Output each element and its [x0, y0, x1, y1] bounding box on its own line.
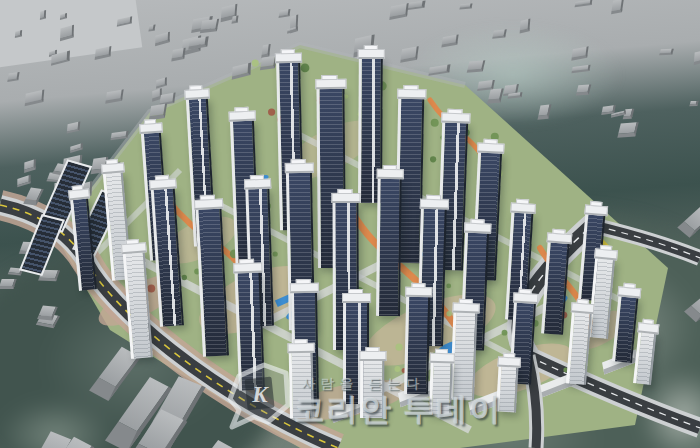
tower-rooftop	[342, 293, 371, 303]
penthouse-box	[576, 299, 588, 305]
city-building-block	[287, 26, 298, 34]
city-building-block	[618, 122, 639, 138]
tower-rooftop	[315, 79, 346, 89]
city-building-block	[15, 30, 23, 38]
penthouse-box	[403, 85, 418, 90]
tower-rooftop	[571, 302, 595, 314]
city-building-block	[149, 104, 167, 120]
city-building-block	[155, 31, 170, 46]
city-building-block	[492, 29, 507, 39]
penthouse-box	[382, 165, 396, 170]
penthouse-box	[600, 245, 612, 251]
tower-rooftop	[331, 193, 360, 203]
city-building-block	[60, 13, 67, 20]
penthouse-box	[519, 289, 532, 295]
tower-rooftop	[420, 199, 449, 210]
tower-rooftop	[285, 163, 314, 174]
penthouse-box	[516, 199, 529, 205]
city-building-block	[148, 24, 155, 31]
penthouse-box	[447, 109, 462, 115]
penthouse-box	[249, 175, 263, 180]
city-building-block	[23, 188, 44, 206]
penthouse-box	[623, 283, 635, 289]
city-building-block	[0, 279, 17, 289]
tower-rooftop	[68, 188, 90, 200]
city-building-block	[429, 64, 451, 75]
tower-rooftop	[510, 202, 536, 213]
tower-rooftop	[194, 198, 223, 209]
penthouse-box	[426, 195, 441, 200]
penthouse-box	[280, 49, 294, 54]
tower-rooftop	[149, 178, 177, 190]
penthouse-box	[291, 159, 306, 164]
city-building-block	[17, 175, 31, 187]
penthouse-box	[234, 107, 248, 113]
city-building-block	[261, 44, 270, 58]
city-building-block	[694, 49, 700, 65]
tower-rooftop	[184, 89, 210, 100]
city-slab-building	[685, 290, 700, 322]
penthouse-box	[144, 119, 156, 125]
city-building-block	[171, 48, 186, 61]
city-building-block	[66, 122, 80, 135]
tower-rooftop	[584, 204, 608, 216]
tower-rooftop	[452, 303, 479, 314]
penthouse-box	[590, 201, 602, 207]
penthouse-box	[126, 239, 139, 245]
tower-rooftop	[637, 322, 659, 334]
tower-rooftop	[498, 356, 522, 367]
city-building-block	[571, 46, 588, 60]
city-building-block	[260, 56, 277, 70]
tower-rooftop	[290, 283, 319, 294]
city-building-block	[24, 159, 36, 173]
city-building-block	[611, 0, 624, 14]
apartment-tower	[376, 178, 402, 316]
penthouse-box	[72, 185, 83, 191]
penthouse-box	[363, 45, 377, 50]
tower-rooftop	[139, 122, 163, 134]
city-building-block	[188, 36, 208, 50]
tower-rooftop	[358, 49, 385, 59]
city-building-block	[575, 85, 590, 96]
city-building-block	[689, 101, 698, 106]
tower-rooftop	[405, 287, 432, 298]
tower-rooftop	[547, 232, 573, 244]
city-building-block	[24, 90, 43, 107]
city-building-block	[7, 73, 19, 82]
city-building-block	[401, 46, 420, 63]
penthouse-box	[458, 299, 472, 305]
tower-rooftop	[513, 292, 539, 304]
city-building-block	[117, 17, 132, 27]
logo-letter: K	[251, 382, 269, 407]
tower-rooftop	[477, 143, 504, 154]
penthouse-box	[337, 189, 352, 194]
tower-rooftop	[275, 53, 302, 64]
city-building-block	[571, 65, 590, 73]
city-building-block	[537, 104, 551, 119]
tower-rooftop	[397, 89, 426, 100]
penthouse-box	[154, 175, 168, 181]
tower-rooftop	[288, 343, 315, 354]
city-building-block	[231, 62, 250, 79]
tower-rooftop	[464, 223, 491, 234]
tower-rooftop	[229, 111, 256, 122]
city-building-block	[94, 46, 111, 60]
penthouse-box	[483, 139, 497, 145]
city-building-block	[232, 15, 239, 24]
tower-rooftop	[233, 263, 262, 274]
city-building-block	[467, 61, 486, 74]
city-building-block	[487, 89, 504, 104]
city-building-block	[60, 25, 74, 41]
penthouse-box	[200, 195, 215, 201]
penthouse-box	[322, 75, 338, 80]
penthouse-box	[296, 279, 311, 284]
city-building-block	[477, 79, 494, 90]
penthouse-box	[105, 159, 117, 165]
city-building-block	[105, 90, 123, 104]
city-building-block	[441, 35, 458, 48]
watermark-brand: 코리안 투데이	[294, 389, 503, 431]
city-building-block	[459, 4, 472, 10]
city-building-block	[110, 130, 128, 140]
penthouse-box	[348, 289, 363, 294]
tower-rooftop	[377, 169, 404, 179]
city-building-block	[389, 3, 408, 20]
aerial-3d-rendering: K 사람을 듣는다 코리안 투데이	[0, 0, 700, 448]
city-building-block	[507, 92, 522, 98]
penthouse-box	[503, 353, 515, 359]
penthouse-box	[189, 85, 202, 91]
city-slab-building	[677, 205, 700, 237]
penthouse-box	[470, 219, 484, 225]
k-speech-bubble-logo-icon: K	[222, 360, 294, 440]
penthouse-box	[552, 229, 565, 235]
penthouse-box	[293, 339, 307, 344]
watermark: K 사람을 듣는다 코리안 투데이	[222, 358, 492, 446]
penthouse-box	[411, 283, 425, 288]
city-building-block	[520, 18, 531, 33]
city-building-block	[660, 49, 675, 56]
penthouse-box	[643, 319, 654, 325]
tower-rooftop	[101, 162, 125, 174]
tower-rooftop	[244, 179, 271, 190]
penthouse-box	[365, 347, 379, 352]
city-building-block	[279, 9, 291, 18]
tower-rooftop	[121, 242, 147, 254]
tower-rooftop	[617, 286, 641, 298]
tower-rooftop	[594, 248, 618, 260]
city-building-block	[575, 0, 593, 7]
city-building-block	[200, 19, 219, 34]
city-building-block	[70, 143, 83, 153]
penthouse-box	[239, 259, 254, 265]
penthouse-box	[435, 349, 448, 354]
tower-rooftop	[441, 113, 470, 124]
city-building-block	[40, 10, 47, 20]
city-building-block	[156, 77, 166, 88]
